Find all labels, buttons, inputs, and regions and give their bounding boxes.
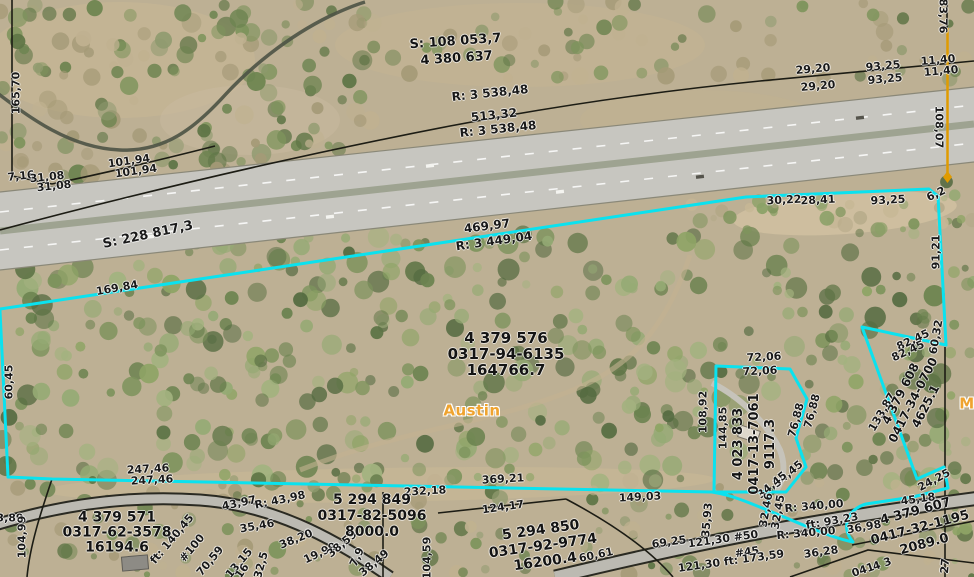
map-viewport[interactable]: R: 3 538,48513,32R: 3 538,4829,2029,2093… (0, 0, 974, 577)
house (121, 555, 148, 571)
aerial-basemap (0, 0, 974, 577)
